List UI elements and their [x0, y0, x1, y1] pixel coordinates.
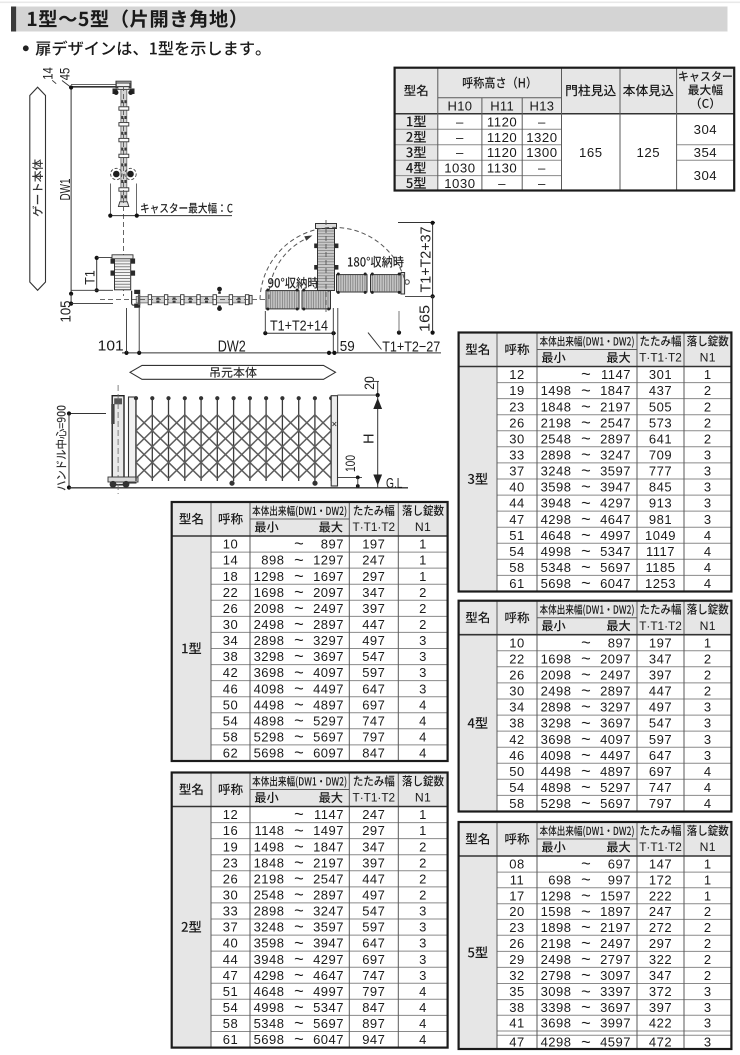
- svg-text:2: 2: [704, 936, 712, 951]
- svg-text:2: 2: [704, 651, 712, 666]
- svg-text:–: –: [456, 145, 464, 160]
- svg-text:3598: 3598: [254, 936, 285, 951]
- svg-text:897: 897: [321, 537, 344, 552]
- svg-text:5297: 5297: [313, 713, 344, 728]
- svg-text:4298: 4298: [541, 1035, 572, 1050]
- svg-text:2498: 2498: [541, 684, 572, 699]
- svg-text:DW1: DW1: [57, 179, 74, 201]
- svg-text:20: 20: [509, 904, 524, 919]
- svg-text:3: 3: [419, 665, 427, 680]
- svg-text:847: 847: [362, 1000, 385, 1015]
- svg-text:247: 247: [362, 553, 385, 568]
- svg-text:4498: 4498: [541, 764, 572, 779]
- svg-text:497: 497: [362, 633, 385, 648]
- svg-text:354: 354: [694, 145, 718, 160]
- svg-text:20: 20: [361, 376, 377, 390]
- svg-text:647: 647: [362, 681, 385, 696]
- svg-text:3: 3: [419, 649, 427, 664]
- svg-text:30: 30: [509, 431, 524, 446]
- svg-text:37: 37: [223, 920, 238, 935]
- svg-text:5698: 5698: [254, 1032, 285, 1047]
- svg-text:1497: 1497: [313, 823, 344, 838]
- svg-text:641: 641: [649, 431, 672, 446]
- svg-text:23: 23: [509, 920, 524, 935]
- svg-text:1298: 1298: [254, 569, 285, 584]
- svg-text:T·T1·T2: T·T1·T2: [639, 840, 682, 854]
- svg-text:4098: 4098: [541, 748, 572, 763]
- svg-text:4497: 4497: [313, 681, 344, 696]
- svg-text:3: 3: [704, 984, 712, 999]
- svg-text:H11: H11: [490, 98, 514, 113]
- svg-text:747: 747: [362, 968, 385, 983]
- svg-text:4297: 4297: [313, 952, 344, 967]
- svg-text:397: 397: [649, 1000, 672, 1015]
- svg-text:H13: H13: [530, 98, 555, 113]
- svg-text:1185: 1185: [646, 560, 676, 575]
- svg-text:38: 38: [509, 1000, 524, 1015]
- svg-text:47: 47: [509, 1035, 524, 1050]
- svg-text:4897: 4897: [313, 697, 344, 712]
- svg-text:1: 1: [419, 553, 427, 568]
- svg-text:12: 12: [509, 367, 524, 382]
- svg-text:247: 247: [649, 904, 672, 919]
- svg-text:2497: 2497: [600, 668, 631, 683]
- svg-text:2: 2: [704, 383, 712, 398]
- svg-text:3: 3: [704, 716, 712, 731]
- svg-text:34: 34: [223, 633, 238, 648]
- svg-text:H: H: [362, 433, 378, 443]
- svg-text:913: 913: [649, 496, 672, 511]
- svg-text:3: 3: [704, 732, 712, 747]
- svg-text:304: 304: [694, 122, 718, 137]
- svg-text:422: 422: [649, 1016, 672, 1031]
- svg-text:747: 747: [649, 780, 672, 795]
- svg-text:58: 58: [509, 796, 524, 811]
- svg-text:26: 26: [223, 601, 238, 616]
- svg-text:47: 47: [223, 968, 238, 983]
- svg-text:3: 3: [419, 633, 427, 648]
- svg-text:2198: 2198: [254, 871, 285, 886]
- svg-text:N1: N1: [415, 791, 431, 805]
- svg-text:547: 547: [362, 649, 385, 664]
- svg-text:347: 347: [362, 839, 385, 854]
- svg-text:2098: 2098: [254, 601, 285, 616]
- svg-text:~: ~: [581, 575, 591, 593]
- svg-text:5347: 5347: [313, 1000, 344, 1015]
- svg-text:297: 297: [362, 823, 385, 838]
- svg-text:5347: 5347: [600, 544, 631, 559]
- svg-text:3: 3: [704, 464, 712, 479]
- svg-text:46: 46: [223, 681, 238, 696]
- svg-text:2897: 2897: [600, 431, 631, 446]
- svg-text:T1+T2+14: T1+T2+14: [270, 318, 328, 335]
- svg-text:3698: 3698: [541, 1016, 572, 1031]
- svg-text:47: 47: [509, 512, 524, 527]
- svg-text:2797: 2797: [600, 952, 631, 967]
- svg-text:322: 322: [649, 952, 672, 967]
- svg-text:2197: 2197: [313, 855, 344, 870]
- svg-text:3298: 3298: [254, 649, 285, 664]
- svg-text:647: 647: [362, 936, 385, 951]
- svg-text:222: 222: [649, 888, 672, 903]
- svg-text:847: 847: [362, 746, 385, 761]
- svg-text:T·T1·T2: T·T1·T2: [639, 619, 682, 633]
- svg-text:5697: 5697: [600, 796, 631, 811]
- svg-text:4: 4: [419, 730, 427, 745]
- svg-text:3: 3: [704, 512, 712, 527]
- svg-text:597: 597: [362, 665, 385, 680]
- svg-text:1597: 1597: [600, 888, 631, 903]
- svg-text:3098: 3098: [541, 984, 572, 999]
- svg-text:50: 50: [223, 697, 238, 712]
- svg-text:16: 16: [223, 823, 238, 838]
- svg-text:347: 347: [362, 585, 385, 600]
- svg-text:26: 26: [509, 668, 524, 683]
- svg-text:697: 697: [362, 952, 385, 967]
- svg-text:62: 62: [223, 746, 238, 761]
- svg-text:981: 981: [649, 512, 672, 527]
- svg-text:4998: 4998: [254, 1000, 285, 1015]
- svg-text:37: 37: [509, 464, 524, 479]
- svg-text:54: 54: [223, 713, 238, 728]
- svg-text:4: 4: [419, 713, 427, 728]
- svg-text:2198: 2198: [541, 415, 572, 430]
- svg-text:2: 2: [419, 855, 427, 870]
- svg-text:3: 3: [704, 1035, 712, 1050]
- svg-text:2: 2: [419, 888, 427, 903]
- svg-text:58: 58: [223, 1016, 238, 1031]
- svg-text:59: 59: [340, 339, 355, 355]
- svg-text:2: 2: [704, 399, 712, 414]
- svg-text:2: 2: [419, 585, 427, 600]
- svg-text:4: 4: [419, 1000, 427, 1015]
- svg-text:~: ~: [581, 795, 591, 813]
- svg-text:H10: H10: [448, 98, 473, 113]
- svg-text:4097: 4097: [313, 665, 344, 680]
- svg-text:6047: 6047: [600, 576, 631, 591]
- svg-text:1120: 1120: [487, 114, 517, 129]
- svg-text:3598: 3598: [541, 480, 572, 495]
- svg-text:–: –: [538, 161, 546, 176]
- svg-text:G.L: G.L: [386, 476, 403, 492]
- svg-text:–: –: [456, 114, 464, 129]
- svg-text:1120: 1120: [487, 130, 517, 145]
- svg-text:T1+T2+37: T1+T2+37: [418, 227, 435, 293]
- svg-text:247: 247: [362, 807, 385, 822]
- svg-text:3: 3: [704, 448, 712, 463]
- svg-text:4: 4: [704, 544, 712, 559]
- svg-text:437: 437: [649, 383, 672, 398]
- svg-text:4: 4: [419, 1016, 427, 1031]
- svg-text:4648: 4648: [541, 528, 572, 543]
- svg-text:397: 397: [649, 668, 672, 683]
- svg-text:14: 14: [223, 553, 238, 568]
- svg-text:3: 3: [419, 968, 427, 983]
- svg-text:1847: 1847: [600, 383, 631, 398]
- svg-text:1147: 1147: [601, 367, 631, 382]
- svg-text:497: 497: [649, 700, 672, 715]
- svg-text:397: 397: [362, 601, 385, 616]
- svg-text:4: 4: [704, 764, 712, 779]
- svg-text:~: ~: [294, 744, 304, 762]
- svg-text:1049: 1049: [645, 528, 676, 543]
- svg-text:4: 4: [704, 560, 712, 575]
- svg-text:DW2: DW2: [218, 339, 246, 356]
- svg-text:T·T1·T2: T·T1·T2: [352, 520, 395, 534]
- svg-text:61: 61: [223, 1032, 238, 1047]
- svg-text:2548: 2548: [254, 888, 285, 903]
- svg-text:61: 61: [509, 576, 524, 591]
- svg-text:22: 22: [223, 585, 238, 600]
- svg-text:4: 4: [419, 746, 427, 761]
- svg-text:697: 697: [649, 764, 672, 779]
- svg-text:6097: 6097: [313, 746, 344, 761]
- svg-text:5298: 5298: [541, 796, 572, 811]
- svg-text:647: 647: [649, 748, 672, 763]
- svg-text:372: 372: [649, 984, 672, 999]
- svg-text:304: 304: [694, 168, 718, 183]
- svg-text:3298: 3298: [541, 716, 572, 731]
- svg-text:1898: 1898: [541, 920, 572, 935]
- svg-text:1: 1: [704, 873, 712, 888]
- svg-text:165: 165: [579, 145, 603, 160]
- svg-text:46: 46: [509, 748, 524, 763]
- svg-text:4897: 4897: [600, 764, 631, 779]
- svg-text:4: 4: [704, 528, 712, 543]
- svg-text:447: 447: [362, 871, 385, 886]
- svg-text:–: –: [538, 176, 546, 191]
- svg-text:4: 4: [419, 984, 427, 999]
- svg-text:347: 347: [649, 968, 672, 983]
- svg-text:165: 165: [418, 305, 434, 332]
- svg-text:5697: 5697: [600, 560, 631, 575]
- svg-text:11: 11: [510, 873, 525, 888]
- svg-text:1697: 1697: [313, 569, 344, 584]
- svg-text:3398: 3398: [541, 1000, 572, 1015]
- svg-text:1298: 1298: [541, 888, 572, 903]
- svg-text:1848: 1848: [541, 399, 572, 414]
- svg-text:34: 34: [509, 700, 524, 715]
- svg-text:5348: 5348: [254, 1016, 285, 1031]
- svg-text:26: 26: [223, 871, 238, 886]
- svg-text:1: 1: [419, 823, 427, 838]
- svg-text:12: 12: [223, 807, 238, 822]
- svg-text:5697: 5697: [313, 1016, 344, 1031]
- svg-text:4997: 4997: [600, 528, 631, 543]
- svg-text:54: 54: [223, 1000, 238, 1015]
- svg-text:100: 100: [342, 455, 358, 472]
- svg-text:51: 51: [509, 528, 524, 543]
- svg-text:125: 125: [637, 145, 661, 160]
- svg-text:3397: 3397: [600, 984, 631, 999]
- svg-text:4997: 4997: [313, 984, 344, 999]
- svg-text:997: 997: [608, 873, 631, 888]
- svg-text:2: 2: [704, 968, 712, 983]
- svg-text:23: 23: [509, 399, 524, 414]
- svg-text:4298: 4298: [541, 512, 572, 527]
- svg-text:35: 35: [509, 984, 524, 999]
- svg-text:797: 797: [362, 730, 385, 745]
- svg-text:3297: 3297: [313, 633, 344, 648]
- svg-text:19: 19: [509, 383, 524, 398]
- svg-text:2898: 2898: [254, 904, 285, 919]
- svg-text:3: 3: [419, 952, 427, 967]
- svg-text:845: 845: [649, 480, 672, 495]
- svg-text:2: 2: [419, 617, 427, 632]
- svg-text:2097: 2097: [600, 651, 631, 666]
- svg-text:747: 747: [362, 713, 385, 728]
- svg-text:44: 44: [509, 496, 524, 511]
- svg-text:272: 272: [649, 920, 672, 935]
- svg-text:40: 40: [223, 936, 238, 951]
- svg-text:~: ~: [581, 1014, 591, 1032]
- svg-text:14: 14: [40, 67, 56, 80]
- svg-text:N1: N1: [415, 520, 431, 534]
- svg-text:547: 547: [649, 716, 672, 731]
- svg-text:3948: 3948: [541, 496, 572, 511]
- svg-text:2: 2: [419, 839, 427, 854]
- svg-text:4498: 4498: [254, 697, 285, 712]
- svg-text:4097: 4097: [600, 732, 631, 747]
- svg-text:6047: 6047: [313, 1032, 344, 1047]
- svg-text:2898: 2898: [254, 633, 285, 648]
- svg-text:3: 3: [704, 480, 712, 495]
- svg-text:N1: N1: [700, 351, 716, 365]
- svg-text:19: 19: [223, 839, 238, 854]
- svg-text:1030: 1030: [444, 161, 475, 176]
- svg-text:2197: 2197: [600, 399, 631, 414]
- svg-text:4497: 4497: [600, 748, 631, 763]
- svg-text:N1: N1: [700, 840, 716, 854]
- svg-text:2898: 2898: [541, 448, 572, 463]
- svg-text:30: 30: [223, 888, 238, 903]
- svg-text:2497: 2497: [600, 936, 631, 951]
- svg-text:1848: 1848: [254, 855, 285, 870]
- svg-text:3247: 3247: [600, 448, 631, 463]
- svg-text:33: 33: [509, 448, 524, 463]
- svg-text:1847: 1847: [313, 839, 344, 854]
- svg-text:1253: 1253: [645, 576, 676, 591]
- svg-text:4597: 4597: [600, 1035, 631, 1050]
- svg-text:3697: 3697: [600, 716, 631, 731]
- svg-text:4647: 4647: [313, 968, 344, 983]
- svg-text:3097: 3097: [600, 968, 631, 983]
- svg-text:5297: 5297: [600, 780, 631, 795]
- svg-text:3: 3: [704, 748, 712, 763]
- svg-text:42: 42: [223, 665, 238, 680]
- svg-text:2498: 2498: [541, 952, 572, 967]
- svg-text:4: 4: [704, 780, 712, 795]
- svg-text:29: 29: [509, 952, 524, 967]
- svg-text:472: 472: [649, 1035, 672, 1050]
- svg-text:40: 40: [509, 480, 524, 495]
- svg-text:3: 3: [704, 700, 712, 715]
- svg-text:898: 898: [261, 553, 284, 568]
- svg-text:3697: 3697: [600, 1000, 631, 1015]
- svg-text:2: 2: [704, 431, 712, 446]
- svg-text:1498: 1498: [254, 839, 285, 854]
- svg-text:497: 497: [362, 888, 385, 903]
- svg-text:1698: 1698: [541, 651, 572, 666]
- svg-text:44: 44: [223, 952, 238, 967]
- svg-text:697: 697: [362, 697, 385, 712]
- svg-text:5698: 5698: [254, 746, 285, 761]
- svg-text:58: 58: [509, 560, 524, 575]
- svg-text:1: 1: [419, 807, 427, 822]
- svg-text:2198: 2198: [541, 936, 572, 951]
- svg-text:4: 4: [419, 1032, 427, 1047]
- svg-text:797: 797: [362, 984, 385, 999]
- svg-text:2547: 2547: [600, 415, 631, 430]
- svg-text:38: 38: [509, 716, 524, 731]
- svg-text:30: 30: [509, 684, 524, 699]
- svg-text:4998: 4998: [541, 544, 572, 559]
- svg-text:597: 597: [362, 920, 385, 935]
- svg-text:54: 54: [509, 544, 524, 559]
- svg-text:1498: 1498: [541, 383, 572, 398]
- svg-text:3297: 3297: [600, 700, 631, 715]
- svg-text:58: 58: [223, 730, 238, 745]
- svg-text:1148: 1148: [255, 823, 285, 838]
- svg-text:698: 698: [548, 873, 571, 888]
- svg-text:297: 297: [362, 569, 385, 584]
- svg-text:301: 301: [649, 367, 672, 382]
- svg-text:1117: 1117: [646, 544, 675, 559]
- svg-text:797: 797: [649, 796, 672, 811]
- svg-text:3948: 3948: [254, 952, 285, 967]
- svg-text:1147: 1147: [314, 807, 344, 822]
- svg-text:3: 3: [704, 1016, 712, 1031]
- svg-text:2: 2: [419, 871, 427, 886]
- svg-text:3698: 3698: [541, 732, 572, 747]
- svg-text:T1+T2−27: T1+T2−27: [382, 339, 440, 356]
- svg-text:2897: 2897: [600, 684, 631, 699]
- svg-text:573: 573: [649, 415, 672, 430]
- svg-text:3247: 3247: [313, 904, 344, 919]
- svg-text:172: 172: [649, 873, 672, 888]
- svg-text:1120: 1120: [487, 145, 517, 160]
- svg-text:23: 23: [223, 855, 238, 870]
- svg-text:38: 38: [223, 649, 238, 664]
- svg-text:2798: 2798: [541, 968, 572, 983]
- svg-text:101: 101: [98, 339, 124, 355]
- svg-text:2: 2: [704, 904, 712, 919]
- svg-text:26: 26: [509, 936, 524, 951]
- svg-text:5348: 5348: [541, 560, 572, 575]
- svg-text:4: 4: [419, 697, 427, 712]
- svg-text:3947: 3947: [313, 936, 344, 951]
- svg-text:2197: 2197: [600, 920, 631, 935]
- svg-text:17: 17: [509, 888, 524, 903]
- svg-text:2: 2: [704, 668, 712, 683]
- svg-text:42: 42: [509, 732, 524, 747]
- svg-text:2: 2: [704, 920, 712, 935]
- svg-text:2098: 2098: [541, 668, 572, 683]
- svg-text:1: 1: [704, 888, 712, 903]
- svg-text:597: 597: [649, 732, 672, 747]
- svg-text:897: 897: [608, 635, 631, 650]
- svg-text:697: 697: [608, 857, 631, 872]
- svg-text:4898: 4898: [541, 780, 572, 795]
- svg-text:3: 3: [704, 1000, 712, 1015]
- svg-text:~: ~: [294, 1031, 304, 1049]
- svg-text:26: 26: [509, 415, 524, 430]
- svg-text:45: 45: [57, 68, 73, 81]
- svg-text:4898: 4898: [254, 713, 285, 728]
- svg-text:4298: 4298: [254, 968, 285, 983]
- svg-text:3597: 3597: [600, 464, 631, 479]
- svg-text:4: 4: [704, 576, 712, 591]
